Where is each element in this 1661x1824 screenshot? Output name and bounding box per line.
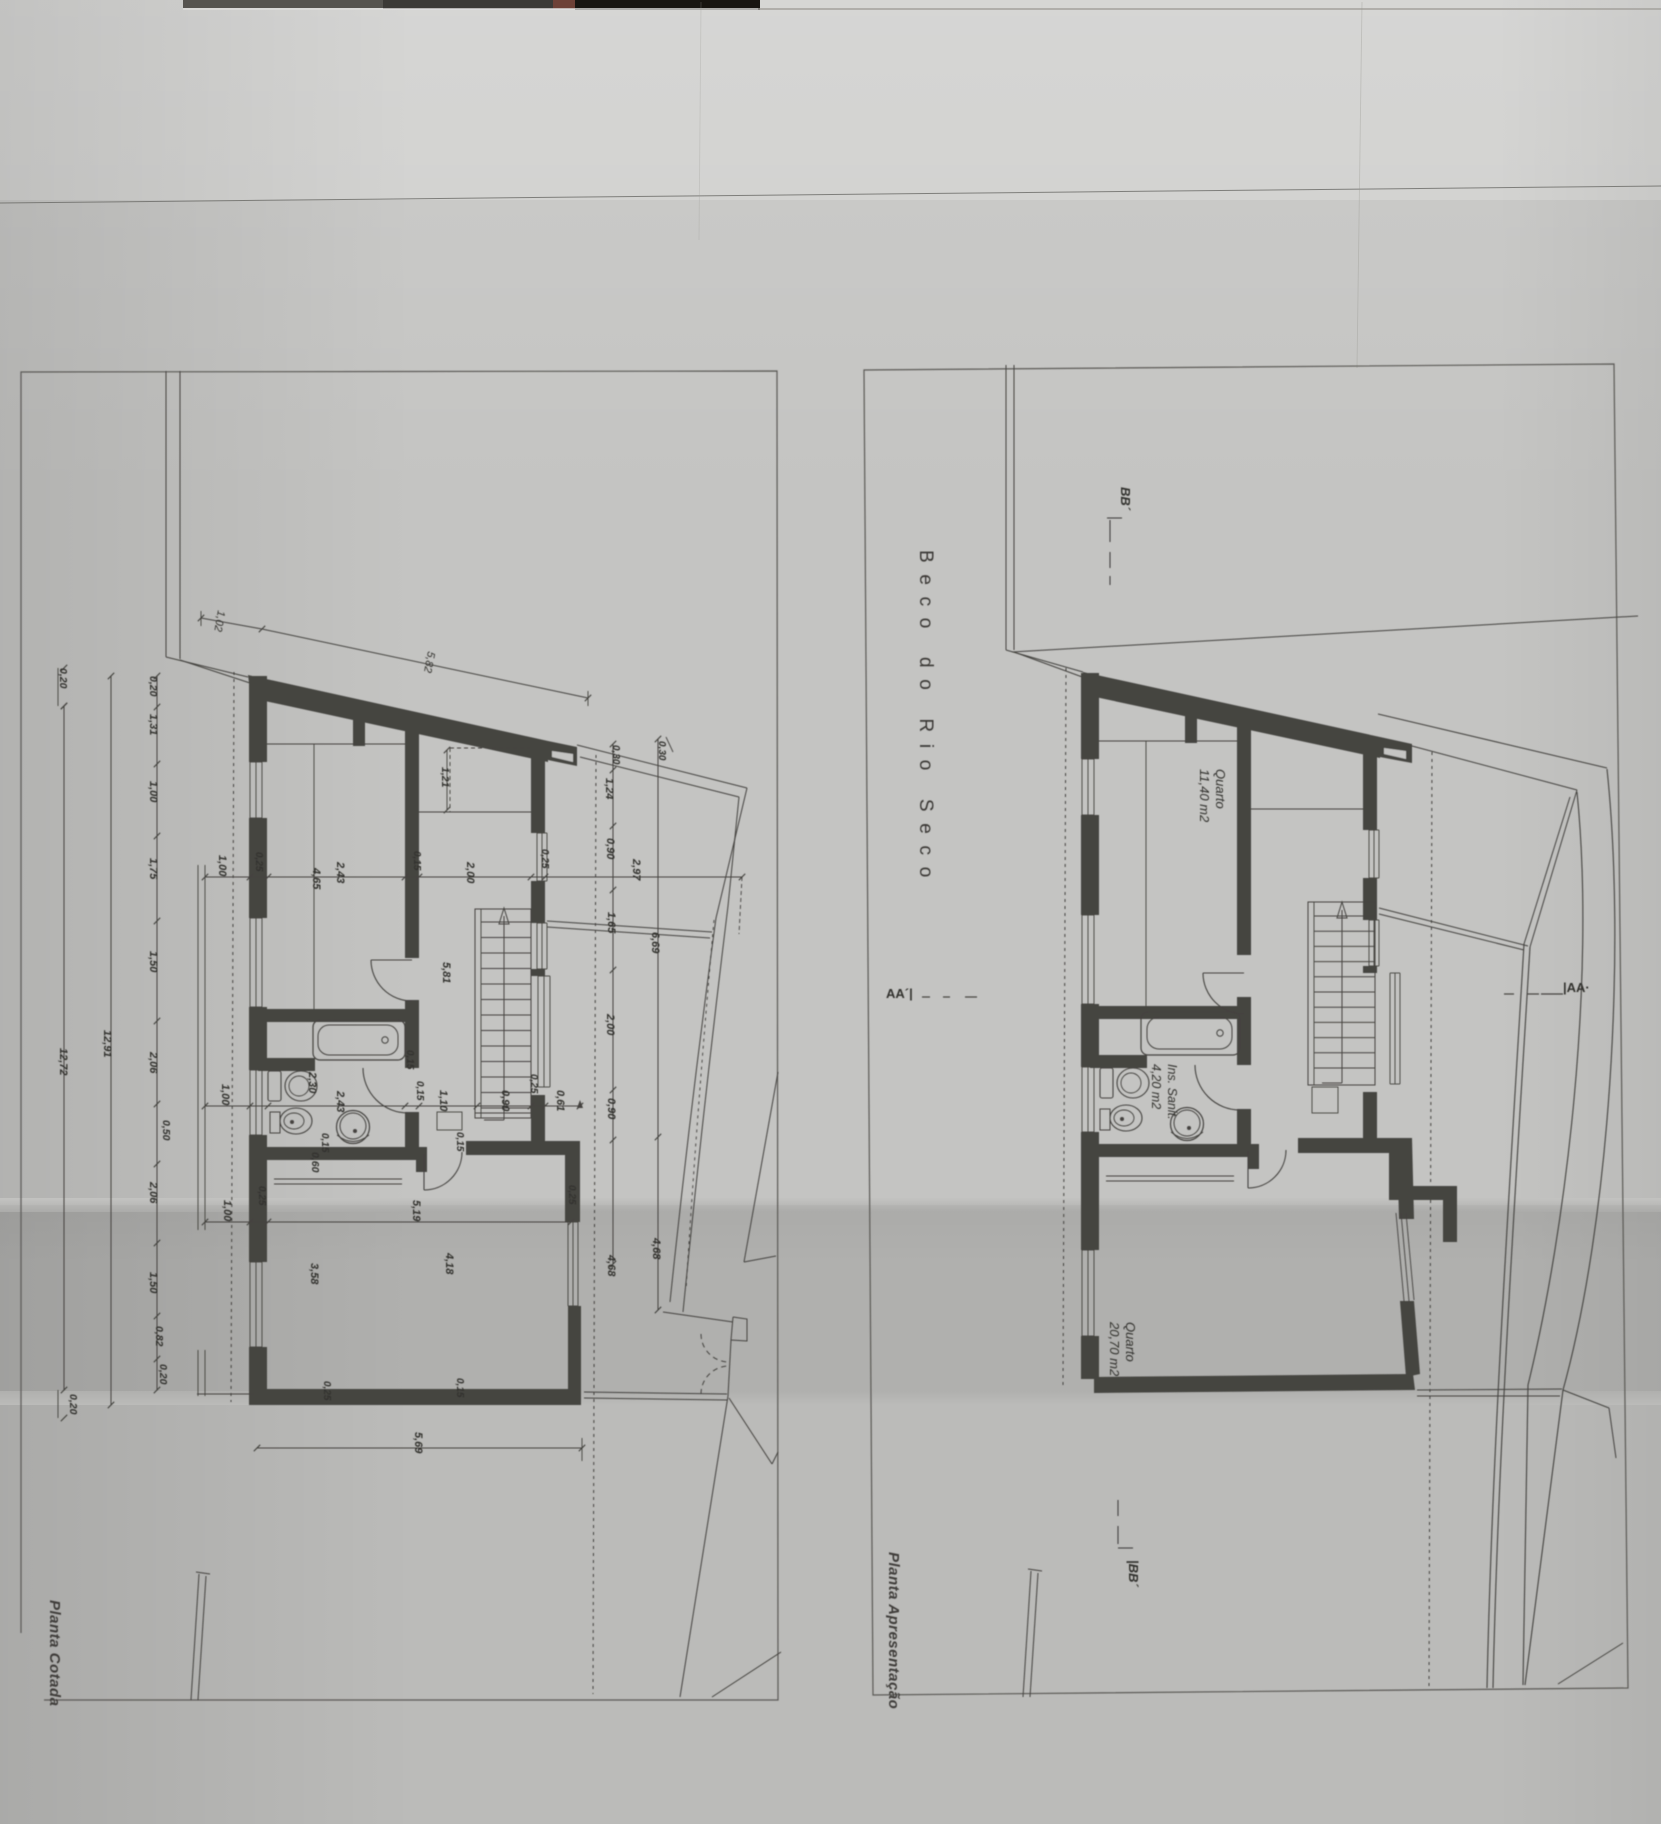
svg-text:0,25: 0,25 <box>566 1185 577 1205</box>
svg-text:0,15: 0,15 <box>454 1378 465 1398</box>
svg-text:Planta Cotada: Planta Cotada <box>46 1600 63 1707</box>
svg-text:1,21: 1,21 <box>439 767 451 788</box>
svg-text:12,91: 12,91 <box>101 1030 113 1058</box>
svg-text:0,20: 0,20 <box>147 676 159 697</box>
svg-text:1,00: 1,00 <box>221 1200 233 1222</box>
svg-text:2,06: 2,06 <box>147 1181 159 1204</box>
svg-text:4,65: 4,65 <box>310 867 322 890</box>
svg-text:0,25: 0,25 <box>321 1381 332 1401</box>
svg-text:Quarto: Quarto <box>1123 1322 1138 1362</box>
svg-text:11,40 m2: 11,40 m2 <box>1197 769 1212 823</box>
svg-text:1,50: 1,50 <box>147 951 159 973</box>
svg-text:0,90: 0,90 <box>604 838 616 860</box>
svg-text:2,00: 2,00 <box>604 1013 616 1036</box>
svg-text:0,60: 0,60 <box>309 1152 321 1173</box>
svg-text:0,20: 0,20 <box>67 1394 79 1415</box>
svg-text:1,75: 1,75 <box>147 858 159 880</box>
svg-text:1,31: 1,31 <box>147 714 159 735</box>
svg-text:0,25: 0,25 <box>256 1186 267 1206</box>
svg-text:0,20: 0,20 <box>157 1364 169 1385</box>
svg-text:5,19: 5,19 <box>410 1200 422 1222</box>
svg-text:3,58: 3,58 <box>308 1263 320 1285</box>
svg-text:0,30: 0,30 <box>656 741 667 761</box>
svg-text:4,20 m2: 4,20 m2 <box>1149 1064 1163 1109</box>
svg-text:1,50: 1,50 <box>147 1272 159 1294</box>
svg-text:1,65: 1,65 <box>605 912 617 934</box>
svg-text:2,00: 2,00 <box>464 861 476 884</box>
svg-text:0,15: 0,15 <box>404 1050 415 1070</box>
svg-text:|AA·: |AA· <box>1563 980 1590 995</box>
svg-text:0,50: 0,50 <box>160 1120 172 1141</box>
svg-text:2,30: 2,30 <box>306 1071 318 1094</box>
svg-text:6,69: 6,69 <box>649 932 661 954</box>
svg-text:12,72: 12,72 <box>57 1048 69 1076</box>
svg-text:AA´|: AA´| <box>886 986 913 1001</box>
svg-text:20,70 m2: 20,70 m2 <box>1107 1321 1122 1377</box>
svg-text:0,25: 0,25 <box>528 1074 539 1094</box>
svg-text:1,10: 1,10 <box>437 1090 449 1112</box>
svg-text:0,82: 0,82 <box>153 1326 165 1347</box>
svg-text:0,25: 0,25 <box>253 852 264 872</box>
svg-text:0,15: 0,15 <box>414 1081 425 1101</box>
svg-text:2,43: 2,43 <box>334 861 346 883</box>
svg-text:BB´: BB´ <box>1118 487 1133 511</box>
svg-text:B e c o d o R i o S e c: B e c o d o R i o S e c o <box>915 550 936 880</box>
svg-text:5,81: 5,81 <box>440 962 452 983</box>
svg-text:1,00: 1,00 <box>147 781 159 803</box>
svg-text:1,00: 1,00 <box>219 1084 231 1106</box>
svg-text:0,30: 0,30 <box>610 745 621 765</box>
svg-text:4,18: 4,18 <box>443 1252 455 1275</box>
svg-text:2,06: 2,06 <box>147 1051 159 1074</box>
svg-text:Planta Apresentação: Planta Apresentação <box>885 1552 902 1709</box>
svg-text:2,43: 2,43 <box>334 1090 346 1112</box>
svg-text:0,90: 0,90 <box>605 1098 617 1120</box>
svg-text:0,61: 0,61 <box>554 1090 566 1111</box>
svg-text:Ins. Sanit.: Ins. Sanit. <box>1165 1064 1179 1120</box>
svg-text:1,00: 1,00 <box>216 855 228 877</box>
svg-text:Quarto: Quarto <box>1213 769 1228 809</box>
svg-text:0,15: 0,15 <box>411 851 422 871</box>
svg-text:1,24: 1,24 <box>603 778 615 799</box>
svg-text:0,20: 0,20 <box>57 668 69 689</box>
svg-text:|BB´: |BB´ <box>1126 1560 1141 1587</box>
svg-text:4,68: 4,68 <box>605 1254 617 1277</box>
svg-text:0,25: 0,25 <box>539 849 550 869</box>
svg-text:5,69: 5,69 <box>412 1432 424 1454</box>
svg-text:0,15: 0,15 <box>454 1132 465 1152</box>
svg-text:4,68: 4,68 <box>650 1237 662 1260</box>
svg-text:0,90: 0,90 <box>499 1090 511 1112</box>
svg-text:2,97: 2,97 <box>630 858 642 881</box>
svg-text:0,15: 0,15 <box>319 1133 330 1153</box>
